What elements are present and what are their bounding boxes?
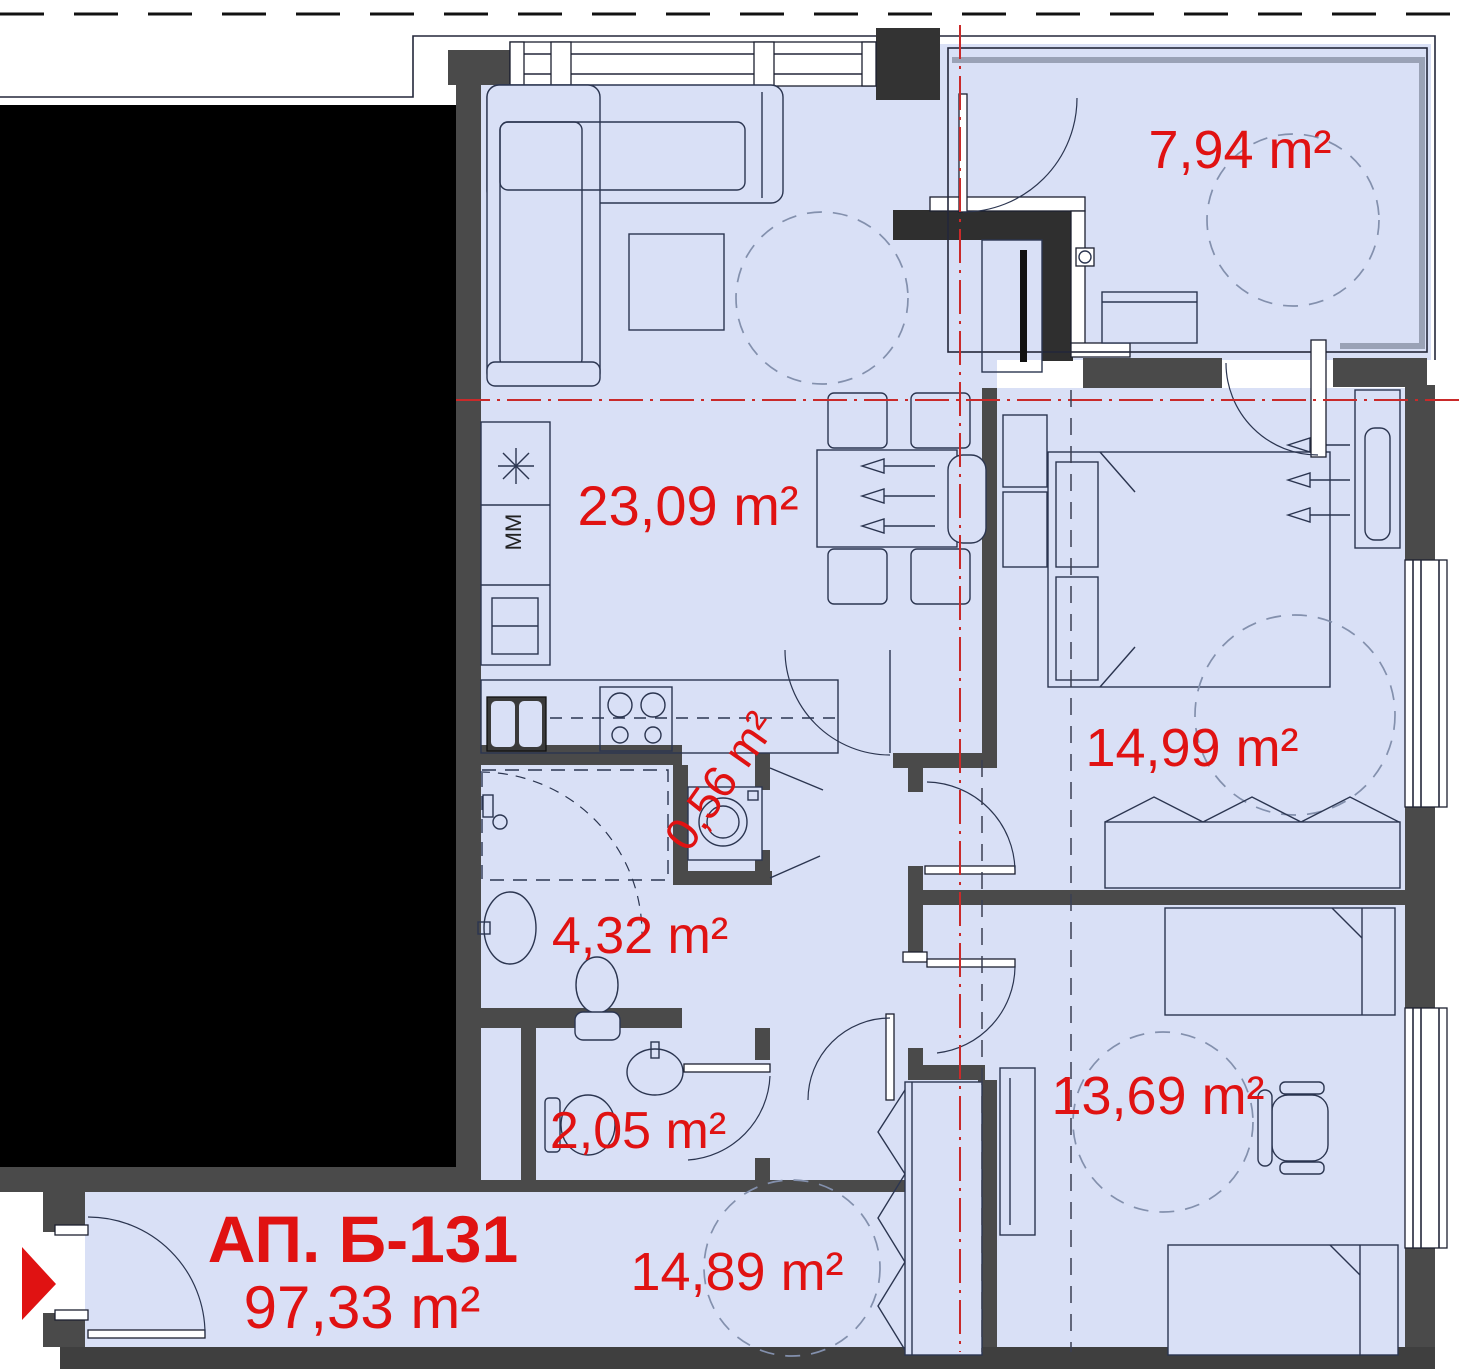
floor-plan-drawing: MM — [0, 0, 1459, 1369]
area-label-bedroom1: 14,99 m² — [1085, 718, 1298, 778]
socket-icon — [1076, 248, 1094, 266]
kitchen-appliance-label: MM — [501, 514, 526, 551]
coffee-table — [629, 234, 724, 330]
area-label-wc: 2,05 m² — [550, 1102, 726, 1160]
floor-plan: MM — [0, 0, 1459, 1369]
area-label-terrace: 7,94 m² — [1148, 120, 1331, 180]
single-bed-bottom — [1168, 1245, 1398, 1355]
nightstand — [1003, 415, 1047, 487]
desk — [1000, 1068, 1035, 1235]
apartment-id-label: АП. Б-131 — [208, 1202, 518, 1276]
terrace-bench — [1102, 292, 1197, 343]
double-bed — [1048, 452, 1330, 687]
single-bed-top — [1165, 908, 1395, 1015]
apartment-total-area-label: 97,33 m² — [244, 1274, 481, 1341]
bedroom-1-window — [1405, 560, 1447, 807]
bathroom-toilet-icon — [575, 957, 620, 1040]
sink-icon — [487, 697, 546, 751]
area-label-bathroom: 4,32 m² — [552, 907, 728, 965]
living-room-window — [510, 42, 876, 86]
adjacent-unit-black-area — [0, 105, 456, 1167]
area-label-hallway: 14,89 m² — [630, 1242, 843, 1302]
area-label-living: 23,09 m² — [578, 474, 799, 537]
area-label-bedroom2: 13,69 m² — [1051, 1066, 1264, 1126]
nightstand — [1003, 492, 1047, 567]
office-chair-icon — [1258, 1082, 1328, 1174]
entry-arrow-icon — [22, 1247, 56, 1320]
bedroom-2-window — [1405, 1008, 1447, 1248]
asterisk-symbol-icon — [498, 448, 534, 484]
